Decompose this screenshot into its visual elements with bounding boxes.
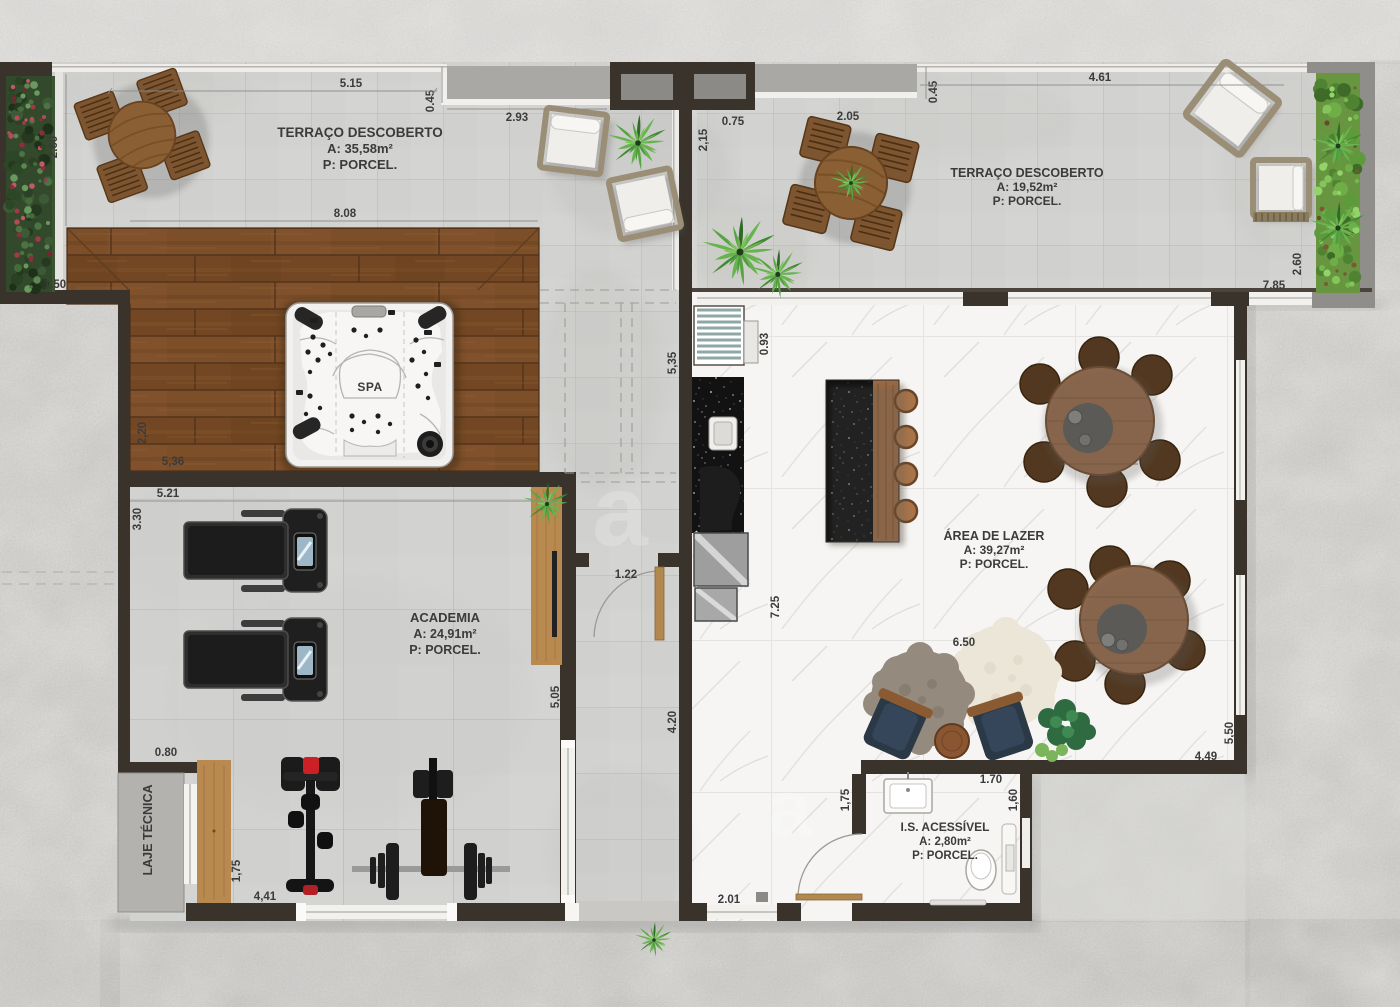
svg-text:2.93: 2.93: [506, 112, 528, 124]
svg-text:5.21: 5.21: [157, 488, 180, 500]
svg-text:a: a: [768, 763, 813, 852]
svg-text:1,75: 1,75: [231, 859, 243, 882]
svg-text:SPA: SPA: [357, 380, 382, 394]
svg-text:A: 39,27m²: A: 39,27m²: [964, 543, 1025, 557]
svg-text:1.50: 1.50: [44, 279, 66, 291]
svg-text:0.45: 0.45: [425, 89, 437, 112]
svg-text:4.61: 4.61: [1089, 72, 1112, 84]
svg-text:5,35: 5,35: [667, 351, 679, 374]
svg-text:TERRAÇO DESCOBERTO: TERRAÇO DESCOBERTO: [950, 166, 1104, 180]
svg-text:4.49: 4.49: [1195, 751, 1217, 763]
svg-text:P: PORCEL.: P: PORCEL.: [993, 194, 1062, 208]
svg-text:A: 2,80m²: A: 2,80m²: [919, 836, 971, 848]
svg-text:a: a: [592, 455, 649, 567]
svg-text:ÁREA DE LAZER: ÁREA DE LAZER: [944, 528, 1045, 543]
svg-text:7.85: 7.85: [1263, 280, 1286, 292]
svg-text:0.75: 0.75: [722, 116, 745, 128]
svg-text:0.80: 0.80: [155, 747, 177, 759]
svg-text:A: 19,52m²: A: 19,52m²: [997, 180, 1058, 194]
svg-text:6.50: 6.50: [953, 637, 975, 649]
svg-text:4,41: 4,41: [254, 891, 277, 903]
svg-text:5,50: 5,50: [1224, 722, 1236, 744]
svg-text:2.60: 2.60: [1292, 253, 1304, 275]
svg-text:5.15: 5.15: [340, 78, 363, 90]
svg-text:P: PORCEL.: P: PORCEL.: [912, 850, 978, 862]
svg-text:2,20: 2,20: [137, 422, 149, 444]
svg-text:P: PORCEL.: P: PORCEL.: [960, 557, 1029, 571]
svg-text:7.25: 7.25: [770, 595, 782, 618]
svg-text:2.01: 2.01: [718, 894, 741, 906]
svg-text:1.70: 1.70: [980, 774, 1002, 786]
svg-text:A: 35,58m²: A: 35,58m²: [327, 141, 393, 156]
svg-text:4.20: 4.20: [667, 711, 679, 733]
svg-text:2,15: 2,15: [698, 128, 710, 151]
svg-text:1,75: 1,75: [840, 788, 852, 811]
svg-text:LAJE TÉCNICA: LAJE TÉCNICA: [140, 785, 155, 876]
svg-text:ACADEMIA: ACADEMIA: [410, 610, 481, 625]
svg-text:2.60: 2.60: [48, 136, 60, 158]
svg-text:A: 24,91m²: A: 24,91m²: [413, 627, 476, 641]
svg-text:2.05: 2.05: [837, 111, 860, 123]
svg-text:1.22: 1.22: [615, 569, 637, 581]
svg-text:8.08: 8.08: [334, 208, 357, 220]
svg-text:5,36: 5,36: [162, 456, 184, 468]
svg-text:P: PORCEL.: P: PORCEL.: [409, 643, 481, 657]
svg-text:5,05: 5,05: [550, 685, 562, 708]
svg-text:P: PORCEL.: P: PORCEL.: [323, 157, 397, 172]
svg-text:1,60: 1,60: [1008, 789, 1020, 811]
svg-text:0.93: 0.93: [759, 333, 771, 355]
svg-text:TERRAÇO DESCOBERTO: TERRAÇO DESCOBERTO: [277, 125, 443, 140]
svg-text:0.45: 0.45: [928, 80, 940, 103]
svg-text:3.30: 3.30: [132, 508, 144, 530]
svg-text:I.S. ACESSÍVEL: I.S. ACESSÍVEL: [901, 819, 990, 834]
